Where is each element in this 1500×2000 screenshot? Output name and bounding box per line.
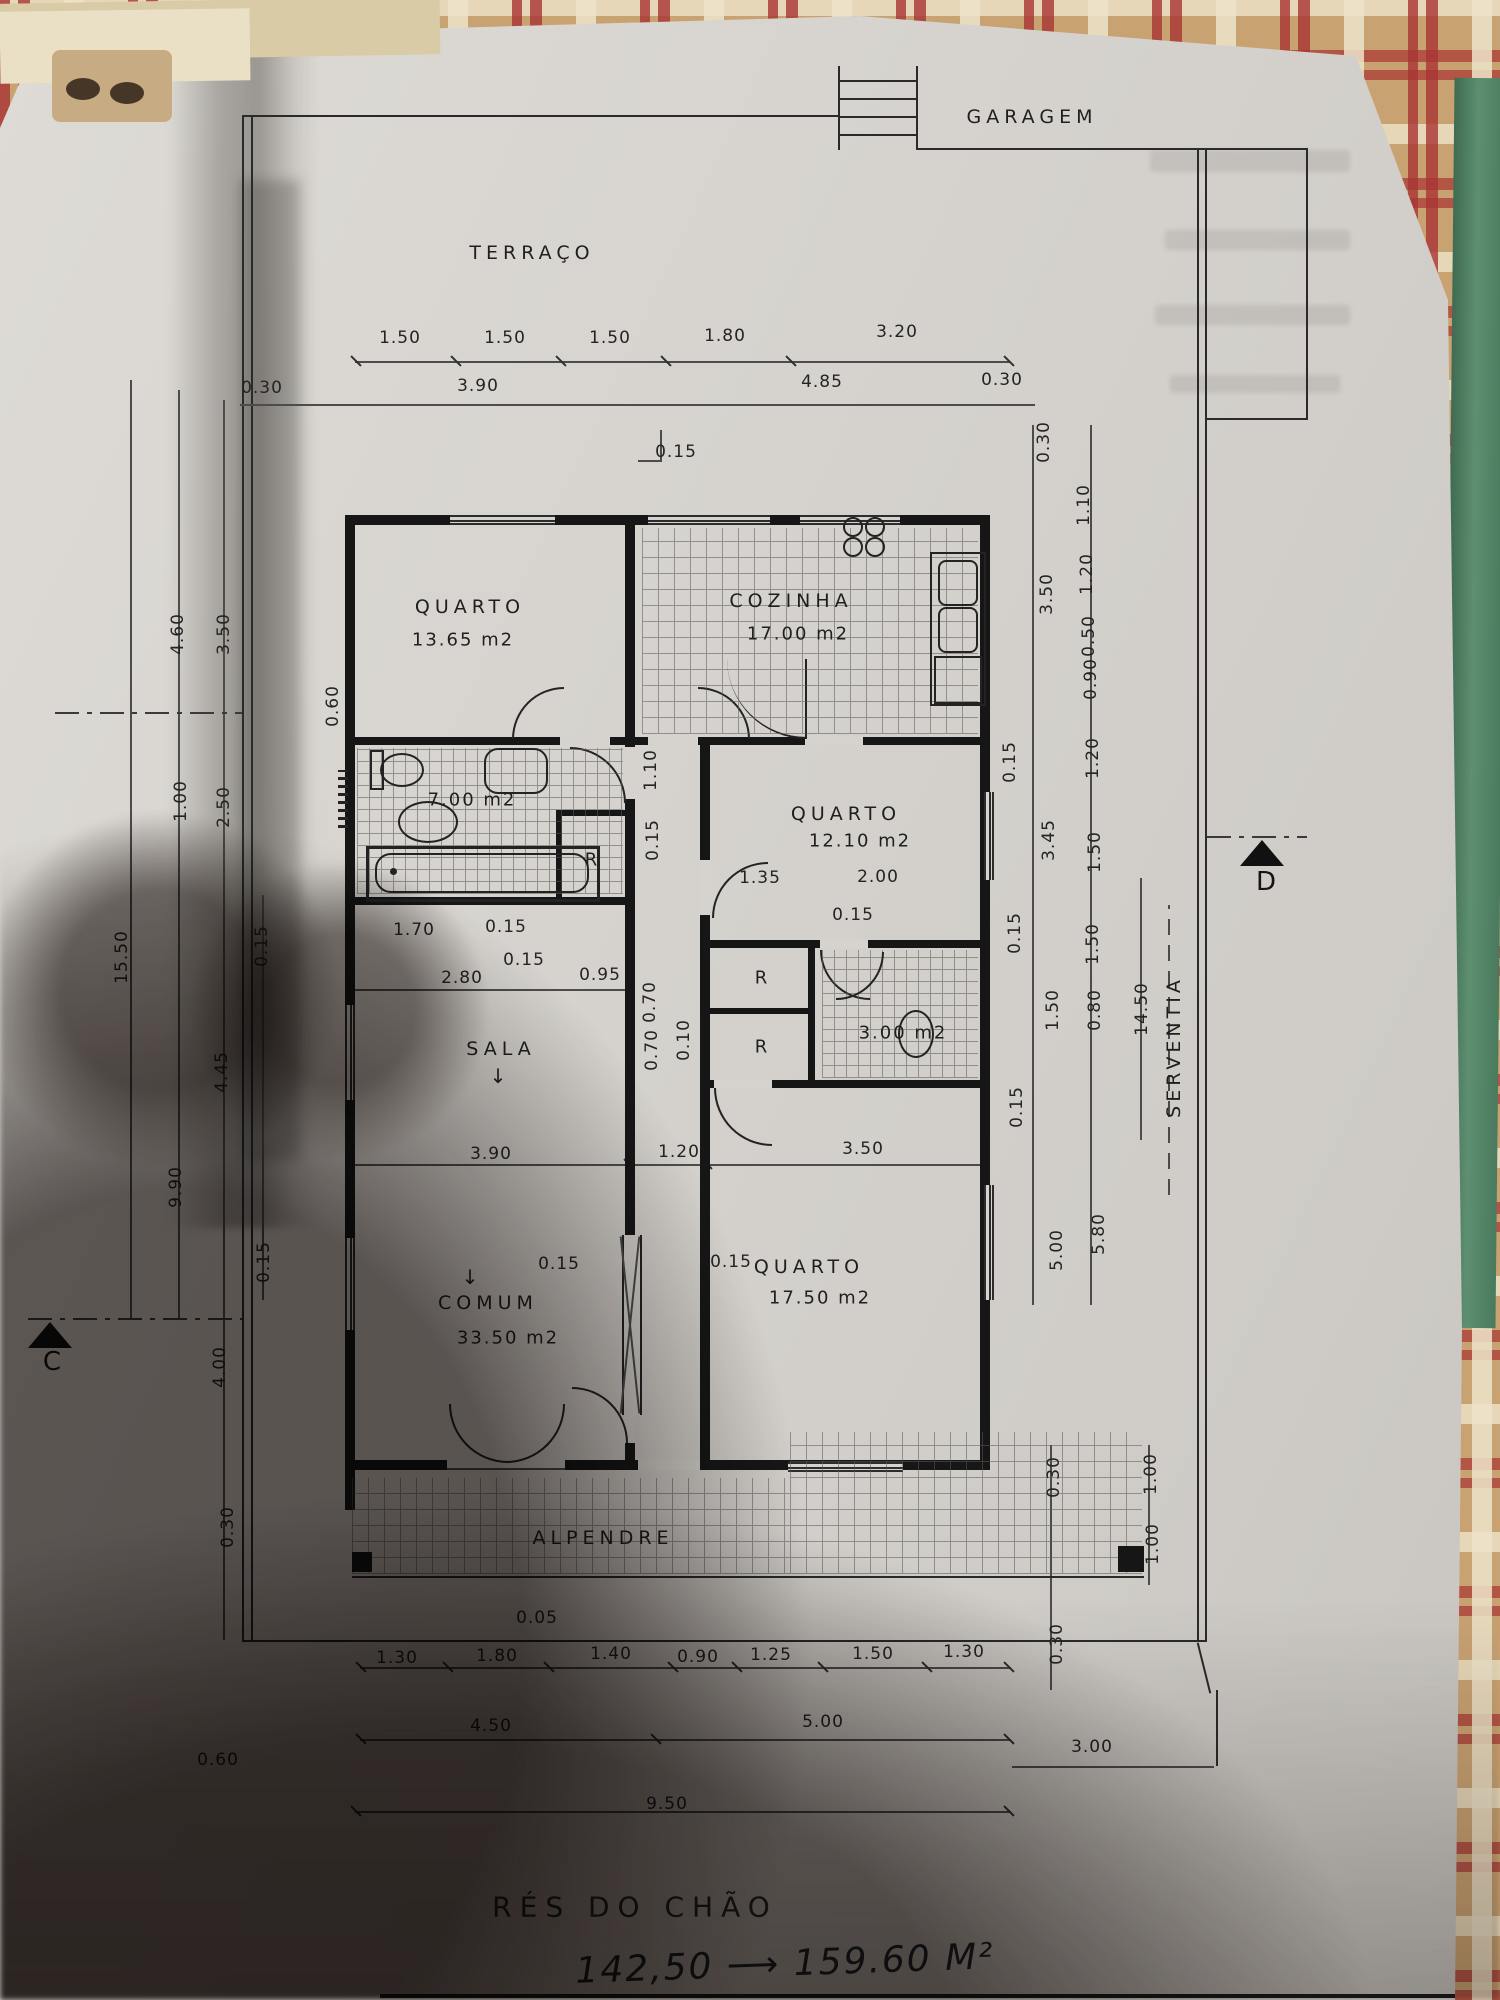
bathtub-drain [390, 868, 397, 875]
dim-label: 0.60 [323, 685, 343, 727]
closet-label: R [755, 1037, 770, 1058]
toilet [380, 753, 424, 787]
door-opening [714, 1080, 772, 1088]
dim-label: 1.30 [376, 1648, 418, 1668]
dim-label: 4.60 [168, 613, 188, 655]
bleed-streak [1155, 305, 1350, 325]
dim-label: 3.20 [876, 322, 918, 342]
dim-label: 0.60 [197, 1750, 239, 1770]
dim-label: 1.40 [590, 1644, 632, 1664]
section-line-c [28, 1318, 242, 1320]
section-triangle-c [28, 1322, 72, 1348]
dim-label: 9.90 [166, 1166, 186, 1208]
dim-label: 0.15 [1005, 912, 1025, 954]
kitchen-sink [938, 560, 978, 606]
door-opening [805, 737, 863, 745]
room-label-terraco: TERRAÇO [469, 242, 594, 264]
dim-line [355, 361, 1010, 363]
stair-tread [840, 134, 916, 136]
radiator [338, 770, 348, 828]
toilet-tank [370, 750, 384, 790]
wall-quarto1-cozinha [625, 515, 635, 737]
room-area-quarto3: 17.50 m2 [769, 1288, 871, 1309]
paper-hole-mark [66, 78, 100, 100]
dim-label: 0.10 [674, 1019, 694, 1061]
dim-label: 14.50 [1132, 982, 1152, 1036]
stove-burner [843, 537, 863, 557]
plot-boundary-right [1197, 150, 1199, 1642]
dim-label: 0.15 [485, 917, 527, 937]
dim-label: 0.15 [252, 925, 272, 967]
dim-label: 1.50 [484, 328, 526, 348]
room-label-serventia: SERVENTIA [1163, 976, 1185, 1118]
plot-boundary-left [242, 115, 244, 1640]
dim-label: 0.15 [1007, 1086, 1027, 1128]
paper-hole-mark [110, 82, 144, 104]
dim-line [130, 380, 132, 1318]
room-label-quarto3: QUARTO [754, 1256, 864, 1278]
dim-label: 1.00 [1141, 1453, 1161, 1495]
door-arc-quarto1 [512, 687, 564, 739]
room-area-quarto1: 13.65 m2 [412, 630, 514, 651]
folding-door-panel [622, 1235, 642, 1415]
dim-label: 1.00 [1143, 1523, 1163, 1565]
dim-label: 0.15 [1000, 741, 1020, 783]
porch-pillar [1118, 1546, 1144, 1572]
dim-label: 0.15 [254, 1241, 274, 1283]
entrance-door-arc-left [449, 1404, 508, 1463]
dim-line [240, 404, 1035, 406]
garage-wall-top [916, 148, 1308, 150]
corridor-wall-right [700, 737, 710, 1470]
dim-label: 0.80 [1085, 989, 1105, 1031]
door-arc-comum [572, 1387, 628, 1443]
kitchen-appliance [934, 656, 982, 704]
stair-rail [838, 66, 840, 150]
dim-label: 5.80 [1089, 1213, 1109, 1255]
dim-label: 0.15 [832, 905, 874, 925]
dim-label: 1.50 [589, 328, 631, 348]
bleed-streak [1150, 150, 1350, 172]
dim-line [352, 989, 628, 991]
entrance-threshold [447, 1468, 565, 1470]
alpendre-floor-hatch-right [790, 1432, 1142, 1574]
dim-label: 3.00 [1071, 1737, 1113, 1757]
dim-label: 3.50 [1037, 573, 1057, 615]
dim-label: 4.85 [801, 372, 843, 392]
dim-label: 3.50 [214, 613, 234, 655]
section-line-d [1207, 836, 1307, 838]
dim-label: 0.30 [1044, 1456, 1064, 1498]
plot-boundary-top [242, 115, 840, 117]
dim-label: 2.00 [857, 867, 899, 887]
plot-boundary-corner [1197, 1643, 1212, 1694]
dim-label: 1.50 [852, 1644, 894, 1664]
room-label-quarto1: QUARTO [415, 596, 525, 618]
dim-label: 15.50 [112, 930, 132, 984]
dim-label: 0.30 [981, 370, 1023, 390]
dim-label: 0.95 [579, 965, 621, 985]
stair-tread [840, 98, 916, 100]
dim-label: 5.00 [802, 1712, 844, 1732]
dim-label: 0.70 [642, 1029, 662, 1071]
section-triangle-d [1240, 840, 1284, 866]
dim-label: 5.00 [1047, 1229, 1067, 1271]
garage-wall-right [1306, 148, 1308, 420]
porch-pillar [352, 1552, 372, 1572]
dim-label: 1.80 [476, 1646, 518, 1666]
bleed-streak [1165, 230, 1350, 250]
room-area-wc: 3.00 m2 [859, 1023, 948, 1044]
dim-label: 9.50 [646, 1794, 688, 1814]
dim-line [360, 1667, 1010, 1669]
photocopy-smudge-streak [240, 180, 300, 1160]
window [345, 1238, 355, 1330]
garage-wall [916, 115, 918, 150]
room-label-sala: SALA [466, 1038, 535, 1060]
dim-label: 0.90 [1081, 658, 1101, 700]
dim-label: 1.50 [379, 328, 421, 348]
alpendre-floor-hatch [352, 1478, 790, 1574]
dim-label: 0.90 [677, 1647, 719, 1667]
plot-boundary-right-inner [1205, 150, 1207, 1642]
handwritten-note: 142,50 ⟶ 159.60 M² [575, 1936, 996, 1992]
sala-arrow: ↓ [490, 1064, 507, 1088]
room-label-quarto2: QUARTO [791, 803, 901, 825]
floor-plan-paper: C D GARAGEM TERRAÇO QUARTO 13.65 m2 COZI… [0, 0, 1500, 2000]
dim-label: 0.15 [643, 819, 663, 861]
bathroom-sink [484, 748, 548, 794]
dim-label: 0.30 [1034, 421, 1054, 463]
dim-label: 0.15 [538, 1254, 580, 1274]
dim-label: 2.80 [441, 968, 483, 988]
window [450, 515, 555, 525]
dim-label: 0.05 [516, 1608, 558, 1628]
corridor-opening [638, 1460, 702, 1470]
bleed-streak [1170, 375, 1340, 393]
door-opening [625, 747, 635, 799]
door-opening [648, 737, 698, 745]
dim-label: 1.10 [641, 749, 661, 791]
dim-label: 1.50 [1085, 831, 1105, 873]
room-label-alpendre: ALPENDRE [532, 1527, 673, 1549]
photo-of-floor-plan: C D GARAGEM TERRAÇO QUARTO 13.65 m2 COZI… [0, 0, 1500, 2000]
dim-label: 0.15 [503, 950, 545, 970]
dim-label: 0.30 [1047, 1623, 1067, 1665]
door-opening [820, 940, 868, 948]
door-opening [560, 737, 610, 745]
door-arc-quarto3 [714, 1088, 772, 1146]
stove-burner [843, 517, 863, 537]
room-area-quarto2: 12.10 m2 [809, 831, 911, 852]
room-area-comum: 33.50 m2 [457, 1328, 559, 1349]
dim-label: 1.20 [658, 1142, 700, 1162]
dim-label: 2.50 [214, 786, 234, 828]
dim-line [1012, 1766, 1214, 1768]
comum-arrow: ↓ [462, 1265, 479, 1289]
dim-label: 0.70 [640, 981, 660, 1023]
dim-label: 0.50 [1079, 615, 1099, 657]
closet-divider [700, 1008, 810, 1014]
porch-edge [352, 1576, 1144, 1578]
dim-label: 3.90 [457, 376, 499, 396]
section-marker-d: D [1256, 867, 1276, 897]
dim-label: 1.10 [1074, 484, 1094, 526]
dim-label: 0.15 [710, 1252, 752, 1272]
dim-label: 4.50 [470, 1716, 512, 1736]
dim-label: 1.20 [1083, 737, 1103, 779]
dim-label: 4.00 [210, 1346, 230, 1388]
dim-label: 1.70 [393, 920, 435, 940]
dim-label: 0.30 [241, 378, 283, 398]
dim-line [1032, 425, 1034, 1305]
dim-label: 3.50 [842, 1139, 884, 1159]
room-label-comum: COMUM [438, 1292, 538, 1314]
window [984, 1185, 994, 1300]
plan-title: RÉS DO CHÃO [492, 1891, 778, 1924]
stove-burner [865, 517, 885, 537]
datum-line [55, 712, 242, 714]
kitchen-sink [938, 607, 978, 653]
room-area-cozinha: 17.00 m2 [747, 624, 849, 645]
plot-boundary-right-lower [1216, 1690, 1218, 1766]
garage-wall-bottom [1207, 418, 1307, 420]
closet-label: R [755, 968, 770, 989]
stair-tread [840, 116, 916, 118]
plot-boundary-left-inner [251, 115, 253, 1640]
closet-divider [808, 940, 815, 1088]
bathtub-inner [375, 853, 589, 893]
dim-label: 1.00 [171, 780, 191, 822]
dim-label: 4.45 [212, 1051, 232, 1093]
closet-label: R [585, 850, 600, 871]
window [345, 1005, 355, 1100]
stair-tread [840, 80, 916, 82]
dim-label: 0.30 [218, 1506, 238, 1548]
room-label-cozinha: COZINHA [729, 590, 852, 612]
dim-line [223, 400, 225, 1640]
window [984, 792, 994, 880]
dim-label: 1.30 [943, 1642, 985, 1662]
dim-line [360, 1739, 1010, 1741]
door-opening [700, 860, 710, 915]
dim-label: 1.35 [739, 868, 781, 888]
dim-label: 0.15 [655, 442, 697, 462]
window [648, 515, 770, 525]
paper-bottom-edge-line [380, 1994, 1500, 1998]
room-label-garagem: GARAGEM [967, 106, 1098, 128]
dim-line [352, 1164, 985, 1166]
stove-burner [865, 537, 885, 557]
dim-label: 1.25 [750, 1645, 792, 1665]
dim-label: 1.50 [1043, 989, 1063, 1031]
dim-label: 1.20 [1077, 553, 1097, 595]
dim-label: 3.90 [470, 1144, 512, 1164]
section-marker-c: C [43, 1347, 61, 1377]
room-area-banho: 7.00 m2 [428, 790, 517, 811]
stacked-paper-torn [52, 50, 172, 122]
dim-label: 1.80 [704, 326, 746, 346]
dim-label: 1.50 [1083, 923, 1103, 965]
dim-label: 3.45 [1039, 819, 1059, 861]
entrance-door-arc-right [506, 1404, 565, 1463]
